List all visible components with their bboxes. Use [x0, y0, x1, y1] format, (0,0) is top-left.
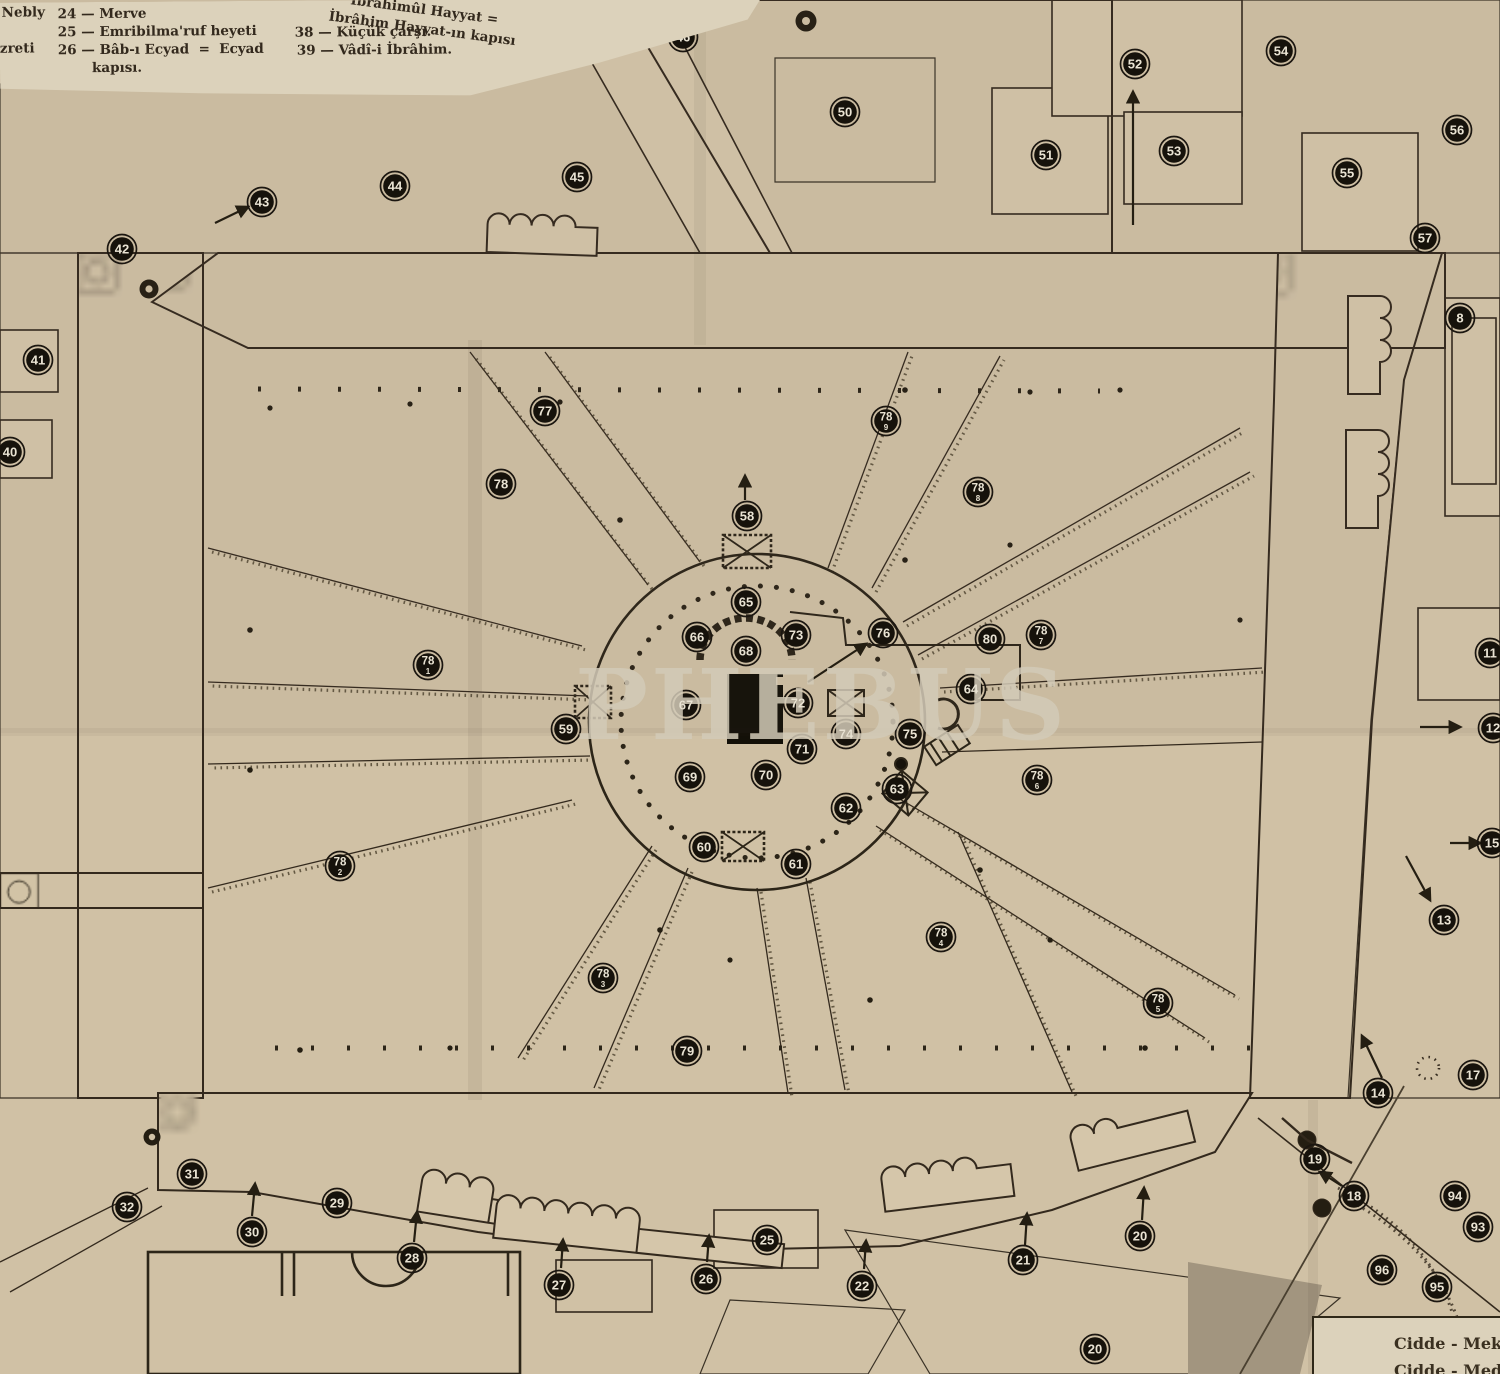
- map-marker-64: 64: [957, 675, 986, 704]
- map-marker-55: 55: [1333, 159, 1362, 188]
- svg-text:19: 19: [1308, 1152, 1322, 1167]
- map-marker-27: 27: [545, 1271, 574, 1300]
- svg-text:96: 96: [1375, 1263, 1389, 1278]
- map-marker-31: 31: [178, 1160, 207, 1189]
- map-marker-79: 79: [673, 1037, 702, 1066]
- svg-text:70: 70: [759, 768, 773, 783]
- svg-text:64: 64: [964, 682, 979, 697]
- map-marker-60: 60: [690, 833, 719, 862]
- svg-text:26: 26: [699, 1272, 713, 1287]
- map-marker-41: 41: [24, 346, 53, 375]
- svg-text:8: 8: [976, 494, 981, 503]
- svg-text:72: 72: [791, 696, 805, 711]
- map-marker-20: 20: [1081, 1335, 1110, 1364]
- map-marker-789: 789: [872, 407, 901, 436]
- svg-text:8: 8: [1456, 311, 1463, 326]
- map-marker-28: 28: [398, 1244, 427, 1273]
- svg-text:55: 55: [1340, 166, 1354, 181]
- routes-label-box: Cidde - Mekke Cidde - Medine: [1312, 1316, 1500, 1374]
- svg-text:68: 68: [739, 644, 753, 659]
- map-marker-42: 42: [108, 235, 137, 264]
- map-marker-785: 785: [1144, 989, 1173, 1018]
- map-marker-67: 67: [672, 691, 701, 720]
- svg-text:79: 79: [680, 1044, 694, 1059]
- svg-text:78: 78: [597, 969, 610, 981]
- map-marker-71: 71: [788, 735, 817, 764]
- svg-text:57: 57: [1418, 231, 1432, 246]
- map-marker-21: 21: [1009, 1246, 1038, 1275]
- svg-text:78: 78: [880, 412, 893, 424]
- map-marker-62: 62: [832, 794, 861, 823]
- map-marker-29: 29: [323, 1189, 352, 1218]
- svg-text:13: 13: [1437, 913, 1451, 928]
- svg-text:78: 78: [1152, 994, 1165, 1006]
- map-marker-94: 94: [1441, 1182, 1470, 1211]
- map-marker-51: 51: [1032, 141, 1061, 170]
- svg-text:54: 54: [1274, 44, 1289, 59]
- svg-text:29: 29: [330, 1196, 344, 1211]
- map-marker-77: 77: [531, 397, 560, 426]
- map-marker-44: 44: [381, 172, 410, 201]
- map-marker-73: 73: [782, 621, 811, 650]
- map-marker-788: 788: [964, 478, 993, 507]
- map-marker-15: 15: [1478, 829, 1500, 858]
- svg-text:45: 45: [570, 170, 584, 185]
- svg-text:1: 1: [426, 667, 431, 676]
- map-marker-65: 65: [732, 588, 761, 617]
- map-marker-75: 75: [896, 720, 925, 749]
- map-marker-93: 93: [1464, 1213, 1493, 1242]
- map-marker-781: 781: [414, 651, 443, 680]
- map-marker-61: 61: [782, 850, 811, 879]
- map-marker-78: 78: [487, 470, 516, 499]
- map-marker-786: 786: [1023, 766, 1052, 795]
- map-marker-8: 8: [1446, 304, 1475, 333]
- map-marker-45: 45: [563, 163, 592, 192]
- map-marker-22: 22: [848, 1272, 877, 1301]
- svg-text:73: 73: [789, 628, 803, 643]
- map-marker-50: 50: [831, 98, 860, 127]
- svg-text:78: 78: [972, 483, 985, 495]
- map-marker-25: 25: [753, 1226, 782, 1255]
- svg-text:12: 12: [1486, 721, 1500, 736]
- svg-text:43: 43: [255, 195, 269, 210]
- map-marker-57: 57: [1411, 224, 1440, 253]
- route-label: Cidde - Mekke: [1394, 1330, 1500, 1357]
- svg-text:9: 9: [884, 423, 889, 432]
- svg-text:20: 20: [1088, 1342, 1102, 1357]
- svg-text:42: 42: [115, 242, 129, 257]
- svg-text:76: 76: [876, 626, 890, 641]
- svg-text:17: 17: [1466, 1068, 1480, 1083]
- svg-text:67: 67: [679, 698, 693, 713]
- svg-text:27: 27: [552, 1278, 566, 1293]
- map-marker-14: 14: [1364, 1079, 1393, 1108]
- svg-text:41: 41: [31, 353, 45, 368]
- svg-text:65: 65: [739, 595, 753, 610]
- map-marker-30: 30: [238, 1218, 267, 1247]
- mosque-plan-map: 4650525451535655574544434241408777897878…: [0, 0, 1500, 1374]
- map-marker-783: 783: [589, 964, 618, 993]
- svg-text:56: 56: [1450, 123, 1464, 138]
- map-marker-76: 76: [869, 619, 898, 648]
- svg-text:14: 14: [1371, 1086, 1386, 1101]
- legend-fragment: zreti: [0, 42, 35, 55]
- svg-text:78: 78: [494, 477, 508, 492]
- svg-text:32: 32: [120, 1200, 134, 1215]
- map-marker-18: 18: [1340, 1182, 1369, 1211]
- svg-text:78: 78: [422, 656, 435, 668]
- map-marker-787: 787: [1027, 621, 1056, 650]
- svg-text:69: 69: [683, 770, 697, 785]
- legend-item: 26 — Bâb-ı Ecyad = Ecyad: [58, 43, 264, 57]
- svg-text:62: 62: [839, 801, 853, 816]
- svg-text:95: 95: [1430, 1280, 1444, 1295]
- map-marker-68: 68: [732, 637, 761, 666]
- legend-item: 24 — Merve: [58, 8, 147, 22]
- svg-text:50: 50: [838, 105, 852, 120]
- svg-text:75: 75: [903, 727, 917, 742]
- map-marker-782: 782: [326, 852, 355, 881]
- svg-text:93: 93: [1471, 1220, 1485, 1235]
- svg-text:66: 66: [690, 630, 704, 645]
- svg-text:30: 30: [245, 1225, 259, 1240]
- map-marker-63: 63: [883, 775, 912, 804]
- svg-text:71: 71: [795, 742, 809, 757]
- map-marker-74: 74: [832, 720, 861, 749]
- svg-text:5: 5: [1156, 1005, 1161, 1014]
- svg-text:74: 74: [839, 727, 854, 742]
- svg-text:52: 52: [1128, 57, 1142, 72]
- map-marker-13: 13: [1430, 906, 1459, 935]
- svg-text:28: 28: [405, 1251, 419, 1266]
- map-marker-72: 72: [784, 689, 813, 718]
- svg-text:11: 11: [1483, 646, 1497, 661]
- svg-text:77: 77: [538, 404, 552, 419]
- map-marker-12: 12: [1479, 714, 1500, 743]
- svg-text:78: 78: [1035, 626, 1048, 638]
- map-marker-52: 52: [1121, 50, 1150, 79]
- map-marker-54: 54: [1267, 37, 1296, 66]
- map-marker-56: 56: [1443, 116, 1472, 145]
- svg-text:53: 53: [1167, 144, 1181, 159]
- svg-text:78: 78: [935, 928, 948, 940]
- svg-text:4: 4: [939, 939, 944, 948]
- svg-text:18: 18: [1347, 1189, 1361, 1204]
- svg-text:94: 94: [1448, 1189, 1463, 1204]
- svg-text:20: 20: [1133, 1229, 1147, 1244]
- scanned-map-page: 4650525451535655574544434241408777897878…: [0, 0, 1500, 1374]
- svg-text:40: 40: [3, 445, 17, 460]
- svg-text:59: 59: [559, 722, 573, 737]
- map-marker-95: 95: [1423, 1273, 1452, 1302]
- map-marker-58: 58: [733, 502, 762, 531]
- map-marker-43: 43: [248, 188, 277, 217]
- map-marker-70: 70: [752, 761, 781, 790]
- svg-text:3: 3: [601, 980, 606, 989]
- svg-text:2: 2: [338, 868, 343, 877]
- svg-text:78: 78: [334, 857, 347, 869]
- map-marker-32: 32: [113, 1193, 142, 1222]
- legend-item: kapısı.: [92, 62, 142, 75]
- svg-text:6: 6: [1035, 782, 1040, 791]
- svg-text:78: 78: [1031, 771, 1044, 783]
- svg-text:58: 58: [740, 509, 754, 524]
- svg-text:22: 22: [855, 1279, 869, 1294]
- map-marker-20: 20: [1126, 1222, 1155, 1251]
- svg-text:31: 31: [185, 1167, 199, 1182]
- svg-text:7: 7: [1039, 637, 1044, 646]
- map-marker-96: 96: [1368, 1256, 1397, 1285]
- legend-item: 25 — Emribilma'ruf heyeti: [58, 25, 257, 39]
- svg-text:51: 51: [1039, 148, 1053, 163]
- map-marker-19: 19: [1301, 1145, 1330, 1174]
- svg-text:25: 25: [760, 1233, 774, 1248]
- map-marker-66: 66: [683, 623, 712, 652]
- map-marker-53: 53: [1160, 137, 1189, 166]
- map-marker-69: 69: [676, 763, 705, 792]
- map-marker-80: 80: [976, 625, 1005, 654]
- legend-fragment: Nebly: [2, 6, 45, 19]
- map-marker-59: 59: [552, 715, 581, 744]
- svg-text:63: 63: [890, 782, 904, 797]
- route-label: Cidde - Medine: [1394, 1357, 1500, 1374]
- map-marker-26: 26: [692, 1265, 721, 1294]
- svg-text:60: 60: [697, 840, 711, 855]
- svg-text:21: 21: [1016, 1253, 1030, 1268]
- svg-text:44: 44: [388, 179, 403, 194]
- svg-text:80: 80: [983, 632, 997, 647]
- map-marker-784: 784: [927, 923, 956, 952]
- svg-text:15: 15: [1485, 836, 1499, 851]
- map-marker-17: 17: [1459, 1061, 1488, 1090]
- legend-item: 39 — Vâdî-i İbrâhim.: [297, 44, 452, 58]
- svg-text:61: 61: [789, 857, 803, 872]
